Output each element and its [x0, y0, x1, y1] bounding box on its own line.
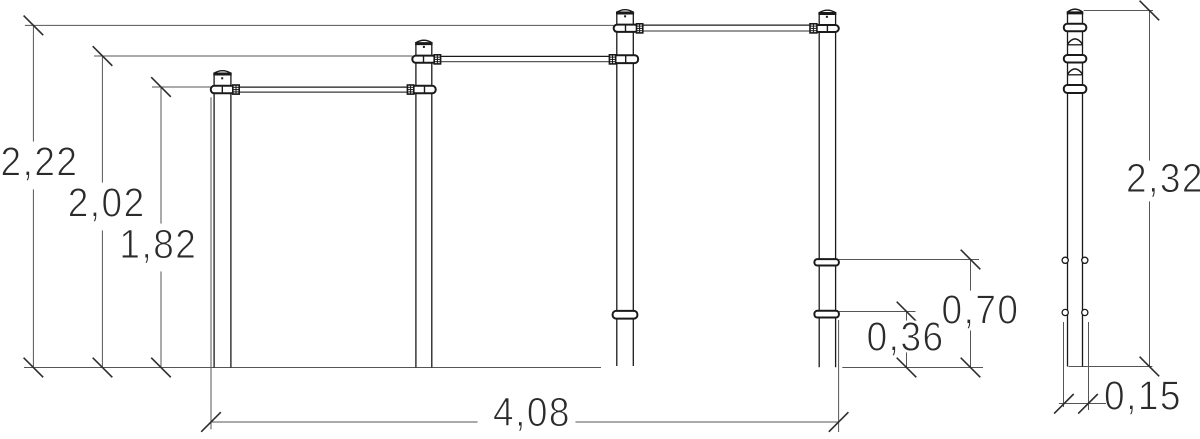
svg-text:1,82: 1,82	[119, 222, 197, 267]
svg-text:4,08: 4,08	[493, 390, 571, 435]
svg-text:0,70: 0,70	[942, 288, 1020, 333]
svg-text:2,32: 2,32	[1126, 156, 1200, 201]
svg-text:0,15: 0,15	[1104, 374, 1182, 419]
svg-text:2,02: 2,02	[68, 181, 146, 226]
svg-text:0,36: 0,36	[867, 315, 945, 360]
svg-text:2,22: 2,22	[1, 140, 79, 185]
